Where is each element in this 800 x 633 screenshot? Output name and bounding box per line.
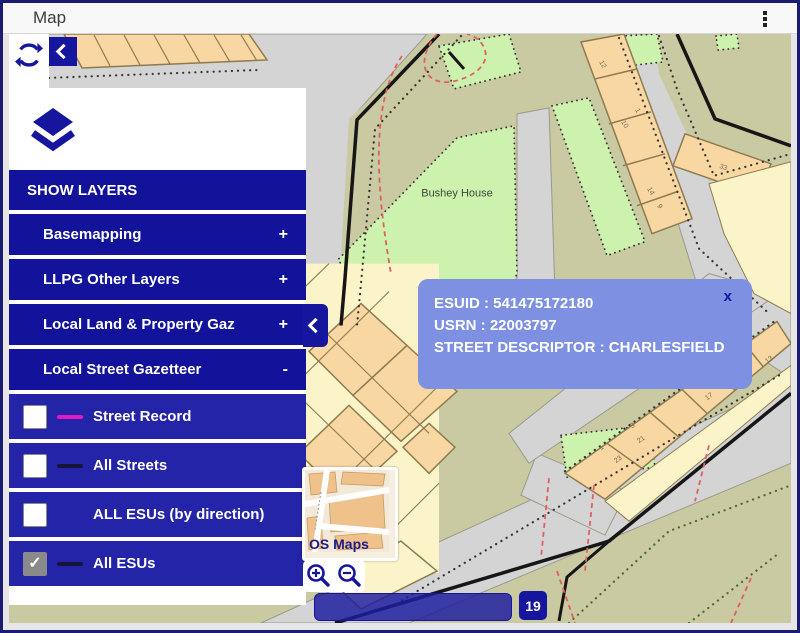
all-esus-checkbox[interactable]: ✓ — [23, 552, 47, 576]
kebab-menu-icon[interactable] — [761, 9, 769, 29]
page-title: Map — [33, 8, 66, 28]
panel-side-collapse-tab[interactable] — [303, 304, 328, 347]
layer-row-all-streets[interactable]: All Streets — [9, 443, 306, 488]
popup-street-descriptor: STREET DESCRIPTOR : CHARLESFIELD — [434, 337, 736, 359]
street-record-swatch — [57, 415, 83, 419]
group-local-street-gazetteer[interactable]: Local Street Gazetteer - — [9, 349, 306, 390]
street-record-checkbox[interactable] — [23, 405, 47, 429]
expand-plus-icon[interactable]: + — [279, 316, 288, 334]
expand-plus-icon[interactable]: + — [279, 271, 288, 289]
overview-minimap[interactable]: OS Maps — [302, 467, 398, 561]
zoom-in-button[interactable] — [306, 563, 332, 589]
group-basemapping[interactable]: Basemapping + — [9, 214, 306, 255]
place-label: Bushey House — [421, 188, 493, 200]
panel-collapse-button[interactable] — [49, 37, 77, 66]
map-content: 12 10 1 14 9 33 1 3 21 23 17 13 Bushey H… — [3, 34, 797, 630]
zoom-out-icon — [337, 563, 363, 589]
group-local-land-property-gaz[interactable]: Local Land & Property Gaz + — [9, 304, 306, 345]
group-llpg-other-layers[interactable]: LLPG Other Layers + — [9, 259, 306, 300]
chevron-left-icon — [308, 318, 324, 334]
panel-header: SHOW LAYERS — [9, 170, 306, 210]
popup-esuid: ESUID : 541475172180 — [434, 293, 736, 315]
layer-row-all-esus[interactable]: ✓ All ESUs — [9, 541, 306, 586]
zoom-level-badge: 19 — [519, 591, 547, 620]
titlebar: Map — [3, 3, 797, 34]
map-window: Map — [0, 0, 800, 633]
minimap-label: OS Maps — [309, 536, 369, 552]
feature-info-popup: ESUID : 541475172180 USRN : 22003797 STR… — [418, 279, 752, 389]
layers-panel-head — [9, 88, 306, 170]
all-esus-by-direction-checkbox[interactable] — [23, 503, 47, 527]
zoom-controls — [303, 560, 365, 592]
all-esus-swatch — [57, 562, 83, 566]
layer-row-all-esus-by-direction[interactable]: ALL ESUs (by direction) — [9, 492, 306, 537]
all-streets-checkbox[interactable] — [23, 454, 47, 478]
layers-icon — [31, 106, 75, 152]
popup-close-button[interactable]: x — [718, 287, 738, 306]
all-streets-swatch — [57, 464, 83, 468]
zoom-slider[interactable] — [314, 593, 512, 621]
chevron-left-icon — [55, 44, 71, 60]
layers-panel: SHOW LAYERS Basemapping + LLPG Other Lay… — [9, 88, 306, 605]
layer-row-street-record[interactable]: Street Record — [9, 394, 306, 439]
refresh-icon — [15, 40, 43, 70]
zoom-out-button[interactable] — [337, 563, 363, 589]
expand-plus-icon[interactable]: + — [279, 226, 288, 244]
collapse-minus-icon[interactable]: - — [283, 361, 288, 379]
zoom-in-icon — [306, 563, 332, 589]
popup-usrn: USRN : 22003797 — [434, 315, 736, 337]
refresh-button[interactable] — [9, 34, 49, 88]
